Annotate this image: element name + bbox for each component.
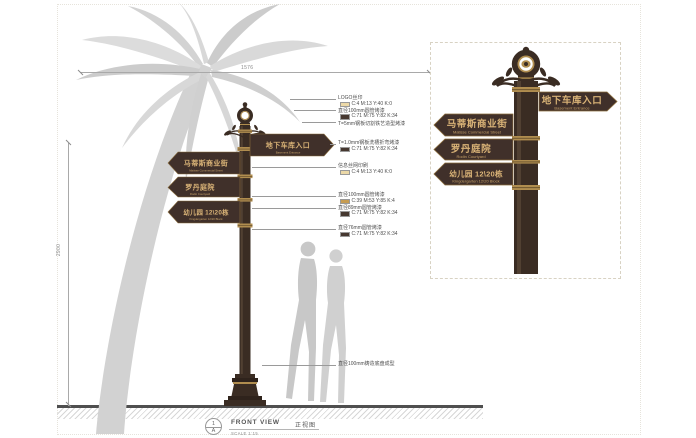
annotation-cmyk-text: C:71 M:75 Y:82 K:34 [352,147,398,153]
detail-number: 1 [206,421,221,427]
view-title: FRONT VIEW [231,419,280,426]
sign-label-cn: 马蒂斯商业街 [184,159,228,168]
annotation-cmyk: C:71 M:75 Y:82 K:34 [340,147,438,153]
sign-label-en: Basement Entrance [276,151,301,155]
annotation-cmyk-text: C:71 M:75 Y:82 K:34 [352,211,398,217]
sign-label-en: Basement Entrance [554,106,590,111]
annotation-cmyk-text: C:39 M:53 Y:85 K:4 [352,199,395,205]
sign-label-en: Kingdergarten 12\20 Block [190,217,224,221]
annotation-text: 直径100mm铸造底盘成型 [338,362,438,368]
leader-line [290,99,336,100]
annotation-cmyk-text: C:71 M:75 Y:82 K:34 [352,114,398,120]
pole-base [224,374,266,406]
color-swatch-icon [340,147,350,153]
leader-line [252,229,336,230]
sign-label-en: Rodin Courtyard [456,154,485,159]
annotation-cmyk: C:39 M:53 Y:85 K:4 [340,199,438,205]
detail-reference-bubble: 1 A [205,418,222,435]
annotation-block-blade: T=1.0mm钢板洗槽折弯烤漆 C:71 M:75 Y:82 K:34 [338,141,438,154]
title-underline [229,429,319,430]
sign-label-cn: 地下车库入口 [266,141,310,150]
annotation-cmyk: C:71 M:75 Y:82 K:34 [340,211,438,217]
annotation-cmyk: C:4 M:13 Y:40 K:0 [340,102,438,108]
dimension-line-top [80,72,430,73]
color-swatch-icon [340,114,350,120]
annotation-block-silkscreen: 信息丝网印刷 C:4 M:13 Y:40 K:0 [338,164,438,177]
leader-line [252,196,336,197]
leader-line [302,122,336,123]
detail-view-drawing: 地下车库入口 Basement Entrance 马蒂斯商业街 Matisse … [431,43,620,278]
leader-line [330,144,336,145]
sign-label-cn: 马蒂斯商业街 [447,118,508,130]
annotation-cmyk: C:4 M:13 Y:40 K:0 [340,170,438,176]
leader-line [294,110,336,111]
sign-label-cn: 罗丹庭院 [185,183,215,192]
sign-label-cn: 幼儿园 12\20栋 [183,208,229,217]
leader-line [262,365,336,366]
annotation-cmyk: C:71 M:75 Y:82 K:34 [340,114,438,120]
scale-label: SCALE 1:15 [231,431,258,436]
annotation-cmyk-text: C:4 M:13 Y:40 K:0 [352,170,393,176]
color-swatch-icon [340,102,350,108]
dimension-line-left [68,143,69,406]
annotation-block-base: 直径100mm铸造底盘成型 [338,362,438,368]
view-title-cn: 正视图 [295,420,316,429]
color-swatch-icon [340,211,350,217]
sign-label-cn: 幼儿园 12\20栋 [449,169,503,179]
color-swatch-icon [340,199,350,205]
annotation-block-finial: LOGO丝印 C:4 M:13 Y:40 K:0 直径100mm圆管烤漆 C:7… [338,96,438,127]
leader-line [252,167,336,168]
sign-blades-main: 地下车库入口 Basement Entrance 马蒂斯商业街 Matisse … [168,134,334,223]
detail-view-box: 地下车库入口 Basement Entrance 马蒂斯商业街 Matisse … [430,42,621,279]
color-swatch-icon [340,232,350,238]
annotation-cmyk-text: C:71 M:75 Y:82 K:34 [352,232,398,238]
annotation-cmyk: C:71 M:75 Y:82 K:34 [340,232,438,238]
sign-label-en: Kingdergarten 12\20 Block [452,179,499,184]
people-silhouettes [286,242,346,403]
sign-label-en: Matisse Commercial Street [189,169,223,173]
annotation-text: T=5mm钢板切割铁艺造型烤漆 [338,122,438,128]
leader-line [252,208,336,209]
color-swatch-icon [340,170,350,176]
annotation-block-lower-tube: 直径76mm圆管烤漆 C:71 M:75 Y:82 K:34 [338,226,438,239]
sheet-letter: A [206,428,221,434]
annotation-cmyk-text: C:4 M:13 Y:40 K:0 [352,102,393,108]
annotation-block-tubes: 直径100mm圆管烤漆 C:39 M:53 Y:85 K:4 直径89mm圆管烤… [338,193,438,219]
drawing-sheet: 地下车库入口 Basement Entrance 马蒂斯商业街 Matisse … [0,0,696,438]
sign-label-en: Matisse Commercial Street [453,130,502,135]
dimension-label-height: 2900 [56,244,62,256]
sign-label-en: Rodin Courtyard [190,192,211,196]
dimension-label-width: 1576 [241,65,253,71]
